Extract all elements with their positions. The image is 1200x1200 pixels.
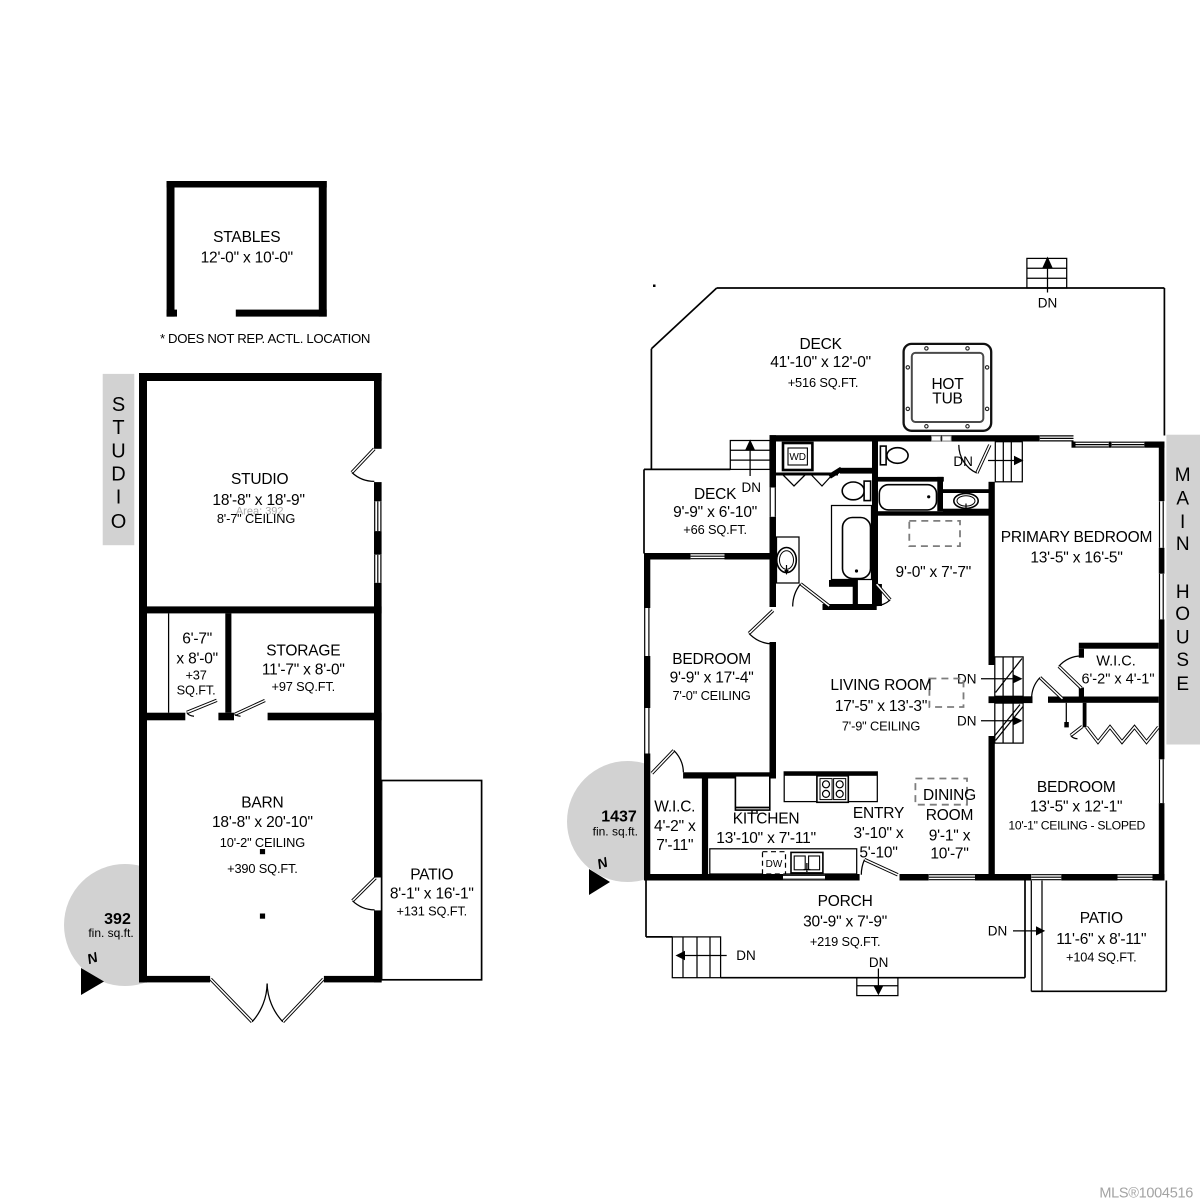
svg-text:A: A (1176, 488, 1189, 509)
svg-text:7'-11": 7'-11" (656, 837, 693, 854)
svg-text:KITCHEN: KITCHEN (733, 811, 800, 828)
svg-text:+131 SQ.FT.: +131 SQ.FT. (397, 903, 468, 918)
svg-text:1437: 1437 (601, 809, 637, 826)
svg-text:+66 SQ.FT.: +66 SQ.FT. (683, 522, 747, 537)
svg-text:DN: DN (953, 454, 973, 469)
svg-text:DN: DN (742, 480, 762, 495)
svg-text:x 8'-0": x 8'-0" (176, 651, 218, 668)
svg-text:4'-2" x: 4'-2" x (654, 818, 696, 835)
svg-text:+390 SQ.FT.: +390 SQ.FT. (227, 861, 298, 876)
svg-text:fin. sq.ft.: fin. sq.ft. (88, 926, 133, 940)
svg-text:8'-7" CEILING: 8'-7" CEILING (217, 511, 295, 526)
svg-text:+104 SQ.FT.: +104 SQ.FT. (1066, 949, 1137, 964)
svg-text:6'-7": 6'-7" (182, 631, 212, 648)
svg-text:41'-10" x 12'-0": 41'-10" x 12'-0" (770, 354, 871, 371)
svg-text:10'-2" CEILING: 10'-2" CEILING (220, 835, 305, 850)
svg-text:W.I.C.: W.I.C. (1096, 654, 1135, 670)
svg-text:DINING: DINING (923, 787, 976, 804)
svg-text:13'-5" x 12'-1": 13'-5" x 12'-1" (1030, 799, 1122, 816)
svg-text:5'-10": 5'-10" (859, 844, 897, 861)
svg-text:11'-6" x 8'-11": 11'-6" x 8'-11" (1056, 931, 1146, 948)
svg-text:6'-2" x 4'-1": 6'-2" x 4'-1" (1081, 672, 1154, 688)
svg-text:E: E (1176, 674, 1189, 695)
svg-text:fin. sq.ft.: fin. sq.ft. (593, 825, 638, 839)
svg-text:LIVING ROOM: LIVING ROOM (830, 677, 931, 694)
svg-text:O: O (1175, 604, 1190, 625)
svg-text:DN: DN (869, 955, 889, 970)
svg-text:PORCH: PORCH (818, 893, 873, 910)
svg-text:17'-5" x 13'-3": 17'-5" x 13'-3" (835, 698, 927, 715)
svg-text:WD: WD (789, 452, 806, 463)
svg-text:U: U (1176, 627, 1190, 648)
svg-text:I: I (116, 487, 122, 509)
svg-text:BEDROOM: BEDROOM (1037, 779, 1116, 796)
svg-text:DN: DN (1038, 296, 1058, 311)
svg-text:DN: DN (988, 923, 1008, 938)
svg-text:W.I.C.: W.I.C. (654, 799, 695, 816)
svg-text:PRIMARY BEDROOM: PRIMARY BEDROOM (1001, 529, 1152, 546)
svg-text:TUB: TUB (932, 390, 962, 407)
svg-text:PATIO: PATIO (1080, 910, 1123, 927)
svg-text:DECK: DECK (694, 486, 737, 503)
svg-text:9'-9" x 6'-10": 9'-9" x 6'-10" (673, 504, 757, 521)
svg-text:DN: DN (957, 713, 977, 728)
svg-text:N: N (1176, 534, 1190, 555)
svg-text:I: I (1180, 512, 1185, 533)
svg-text:ENTRY: ENTRY (853, 805, 904, 822)
svg-text:7'-0" CEILING: 7'-0" CEILING (672, 688, 750, 703)
svg-text:* DOES NOT REP. ACTL. LOCATION: * DOES NOT REP. ACTL. LOCATION (160, 331, 370, 346)
svg-text:3'-10" x: 3'-10" x (854, 825, 904, 842)
svg-text:SQ.FT.: SQ.FT. (177, 682, 216, 697)
svg-text:STORAGE: STORAGE (266, 642, 340, 659)
svg-text:H: H (1176, 582, 1190, 603)
svg-text:13'-10" x 7'-11": 13'-10" x 7'-11" (716, 830, 816, 847)
svg-text:PATIO: PATIO (410, 866, 453, 883)
svg-text:+97 SQ.FT.: +97 SQ.FT. (272, 679, 336, 694)
svg-text:D: D (111, 464, 125, 486)
svg-text:+219 SQ.FT.: +219 SQ.FT. (810, 934, 881, 949)
svg-text:9'-9" x 17'-4": 9'-9" x 17'-4" (670, 670, 754, 687)
svg-text:9'-1" x: 9'-1" x (929, 828, 971, 845)
svg-text:T: T (112, 417, 124, 439)
svg-text:ROOM: ROOM (926, 807, 973, 824)
svg-text:S: S (112, 394, 125, 416)
svg-text:11'-7" x 8'-0": 11'-7" x 8'-0" (262, 661, 345, 678)
svg-text:S: S (1176, 650, 1189, 671)
svg-text:30'-9" x 7'-9": 30'-9" x 7'-9" (803, 914, 887, 931)
svg-text:M: M (1175, 465, 1191, 486)
svg-text:STUDIO: STUDIO (231, 471, 289, 488)
svg-text:O: O (111, 511, 127, 533)
svg-text:10'-7": 10'-7" (930, 846, 968, 863)
svg-text:DN: DN (736, 948, 756, 963)
svg-text:BEDROOM: BEDROOM (672, 651, 751, 668)
svg-text:MLS®1004516: MLS®1004516 (1099, 1186, 1193, 1200)
svg-text:18'-8" x 20'-10": 18'-8" x 20'-10" (212, 814, 313, 831)
svg-text:+516 SQ.FT.: +516 SQ.FT. (788, 375, 859, 390)
svg-text:DW: DW (766, 859, 783, 870)
svg-text:DECK: DECK (799, 336, 842, 353)
svg-text:7'-9" CEILING: 7'-9" CEILING (842, 719, 920, 734)
svg-text:12'-0" x 10'-0": 12'-0" x 10'-0" (201, 250, 293, 267)
svg-text:U: U (111, 441, 125, 463)
svg-text:+37: +37 (185, 667, 206, 682)
svg-text:8'-1" x 16'-1": 8'-1" x 16'-1" (390, 886, 474, 903)
svg-text:13'-5" x 16'-5": 13'-5" x 16'-5" (1030, 550, 1122, 567)
svg-text:9'-0" x 7'-7": 9'-0" x 7'-7" (896, 564, 972, 581)
svg-text:10'-1" CEILING - SLOPED: 10'-1" CEILING - SLOPED (1008, 819, 1145, 833)
svg-text:STABLES: STABLES (213, 229, 280, 246)
svg-text:BARN: BARN (241, 795, 283, 812)
